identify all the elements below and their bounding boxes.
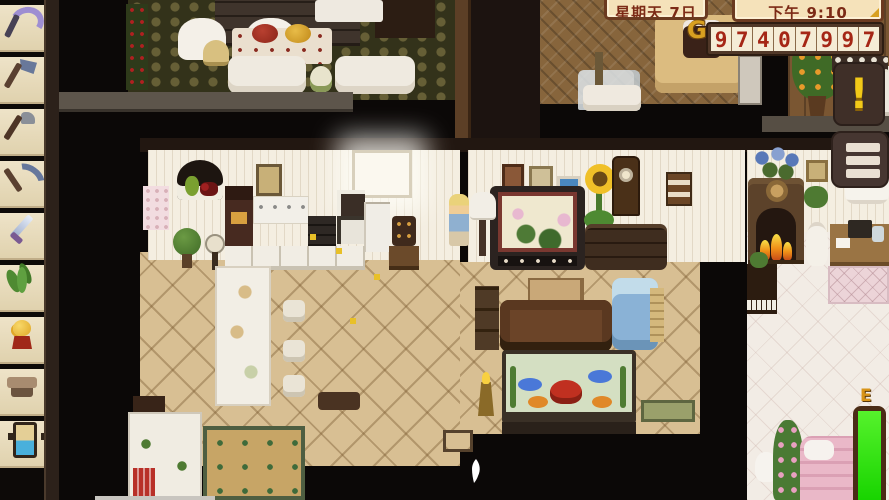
- bedroom-plant: [804, 186, 828, 208]
- toolbar-slot-axe[interactable]: [0, 57, 44, 104]
- yellow-pouf: [285, 24, 311, 43]
- hamburger-icon: [846, 169, 880, 178]
- cat-plush: [310, 66, 332, 92]
- inventory-toolbar[interactable]: [0, 0, 57, 500]
- fern-icon: [5, 265, 39, 299]
- bench-icon: [5, 369, 39, 403]
- seaweed-right: [620, 366, 626, 408]
- hamburger-icon: [846, 143, 880, 152]
- fire-flame-3: [783, 242, 792, 260]
- tv-screen: [498, 192, 577, 252]
- gold-digit: 4: [753, 27, 774, 51]
- wall-banner: [666, 172, 692, 206]
- lace-curtain: [143, 186, 169, 230]
- flowering-plant: [773, 420, 803, 500]
- red-pouf: [252, 24, 278, 43]
- stone-wall-cap: [57, 92, 353, 112]
- energy-fill: [858, 411, 881, 500]
- toolbar-slot-hoe[interactable]: [0, 109, 44, 156]
- player-character: [449, 194, 469, 246]
- toolbar-slot-sword[interactable]: [0, 213, 44, 260]
- clock-face: [619, 168, 633, 182]
- tank-water: [506, 354, 632, 412]
- white-sofa-left: [228, 56, 306, 94]
- piano-plant: [750, 252, 768, 268]
- tank-base: [502, 422, 636, 434]
- white-chairs: [583, 85, 641, 111]
- time-box: 下午 9:10: [732, 0, 884, 22]
- gold-digit: 0: [774, 27, 795, 51]
- toolbar-slot-chicken-statue[interactable]: [0, 317, 44, 364]
- laptop: [848, 220, 872, 238]
- topiary-plant: [173, 228, 201, 256]
- sewing-table: [315, 0, 383, 22]
- scroll-icon: [5, 421, 39, 455]
- tv-controls: [498, 256, 577, 266]
- fan: [205, 234, 225, 254]
- scythe-icon: [5, 5, 39, 39]
- green-clover-rug: [203, 426, 305, 500]
- toolbar-slot-pickaxe[interactable]: [0, 161, 44, 208]
- gold-digit: 9: [817, 27, 838, 51]
- red-octopus: [550, 380, 582, 404]
- tan-blanket: [650, 288, 664, 342]
- coffee-window: [231, 212, 247, 224]
- seaweed-left: [510, 366, 516, 408]
- kitchen-painting: [256, 164, 282, 196]
- fish-tank[interactable]: [502, 350, 636, 424]
- desk-paper: [836, 238, 850, 248]
- blue-flower-vase: [750, 146, 802, 182]
- gold-coin-icon: G: [687, 16, 707, 44]
- floor-lamp-shade: [470, 192, 496, 220]
- green-crate: [641, 400, 695, 422]
- mouse-cursor-icon: [469, 458, 483, 484]
- attic-door: [375, 0, 435, 38]
- wicker-chair: [203, 40, 229, 66]
- gold-counter: 97407997: [706, 22, 884, 56]
- basket-pear: [185, 176, 199, 196]
- sword-icon: [5, 213, 39, 247]
- telephone: [392, 216, 416, 246]
- side-table: [475, 286, 499, 350]
- fridge: [364, 202, 390, 252]
- pink-quilt: [828, 266, 889, 304]
- living-dresser: [585, 224, 667, 270]
- toolbar-slot-scroll[interactable]: [0, 421, 44, 468]
- topiary-stand: [182, 254, 192, 268]
- berry-plant: [126, 4, 148, 90]
- floor-lamp-base: [479, 220, 486, 256]
- toolbar-slot-fern[interactable]: [0, 265, 44, 312]
- microwave: [337, 190, 365, 218]
- gold-digit: 7: [859, 27, 879, 51]
- toolbar-edge: [44, 0, 59, 500]
- gold-digit: 7: [796, 27, 817, 51]
- quest-journal-button[interactable]: !: [833, 62, 885, 126]
- stair-banister: [455, 0, 471, 150]
- gold-digit: 7: [732, 27, 753, 51]
- hoe-icon: [5, 109, 39, 143]
- blue-fish-2: [588, 370, 612, 383]
- time-label: 下午 9:10: [735, 2, 881, 22]
- kitchen-island: [215, 266, 271, 406]
- bedroom-picture: [806, 160, 828, 182]
- hamburger-icon: [846, 156, 880, 165]
- candle-flame: [482, 372, 490, 384]
- orange-fish-1: [528, 396, 548, 408]
- utensil-rack: [253, 196, 309, 224]
- wreath-decor: [766, 180, 788, 202]
- energy-label: E: [860, 386, 872, 406]
- island-stool-3: [283, 375, 305, 397]
- grandfather-clock: [612, 156, 640, 216]
- white-sofa-right: [335, 56, 415, 94]
- phone-table: [389, 246, 419, 270]
- bed-pillow-small: [804, 440, 834, 460]
- inventory-slots: [0, 0, 44, 468]
- small-dark-table: [318, 392, 360, 410]
- stairwell: [460, 0, 540, 150]
- pickaxe-icon: [5, 161, 39, 195]
- dark-crate: [133, 396, 165, 412]
- energy-bar: [853, 406, 886, 500]
- game-screen: 星期天 7日 下午 9:10 G 97407997 ! E: [0, 0, 889, 500]
- desk-jar: [872, 226, 884, 242]
- sunflower-scatter: [310, 234, 316, 240]
- island-stool-1: [283, 300, 305, 322]
- rabbit-plush: [806, 222, 828, 266]
- blue-fish-1: [518, 378, 542, 391]
- island-stool-2: [283, 340, 305, 362]
- gold-digit: 9: [838, 27, 859, 51]
- brown-couch[interactable]: [500, 300, 612, 352]
- fire-flame-2: [771, 234, 782, 260]
- orange-fish-2: [592, 396, 612, 408]
- gold-digit: 9: [711, 27, 732, 51]
- hall-shelf: [738, 55, 762, 105]
- menu-button[interactable]: [831, 131, 889, 188]
- basket-berries: [200, 182, 218, 196]
- chicken-icon: [5, 317, 39, 351]
- bottom-light-strip: [95, 496, 215, 500]
- toolbar-slot-scythe[interactable]: [0, 5, 44, 52]
- doorway-tile: [443, 430, 473, 452]
- axe-icon: [5, 57, 39, 91]
- sunflower-head: [585, 164, 615, 194]
- exclamation-icon: !: [849, 73, 868, 115]
- piano-keys: [747, 300, 777, 310]
- toolbar-slot-bench[interactable]: [0, 369, 44, 416]
- kitchen-sink: [337, 216, 365, 244]
- gold-counter-digits: 97407997: [711, 27, 879, 51]
- game-world[interactable]: [0, 0, 889, 500]
